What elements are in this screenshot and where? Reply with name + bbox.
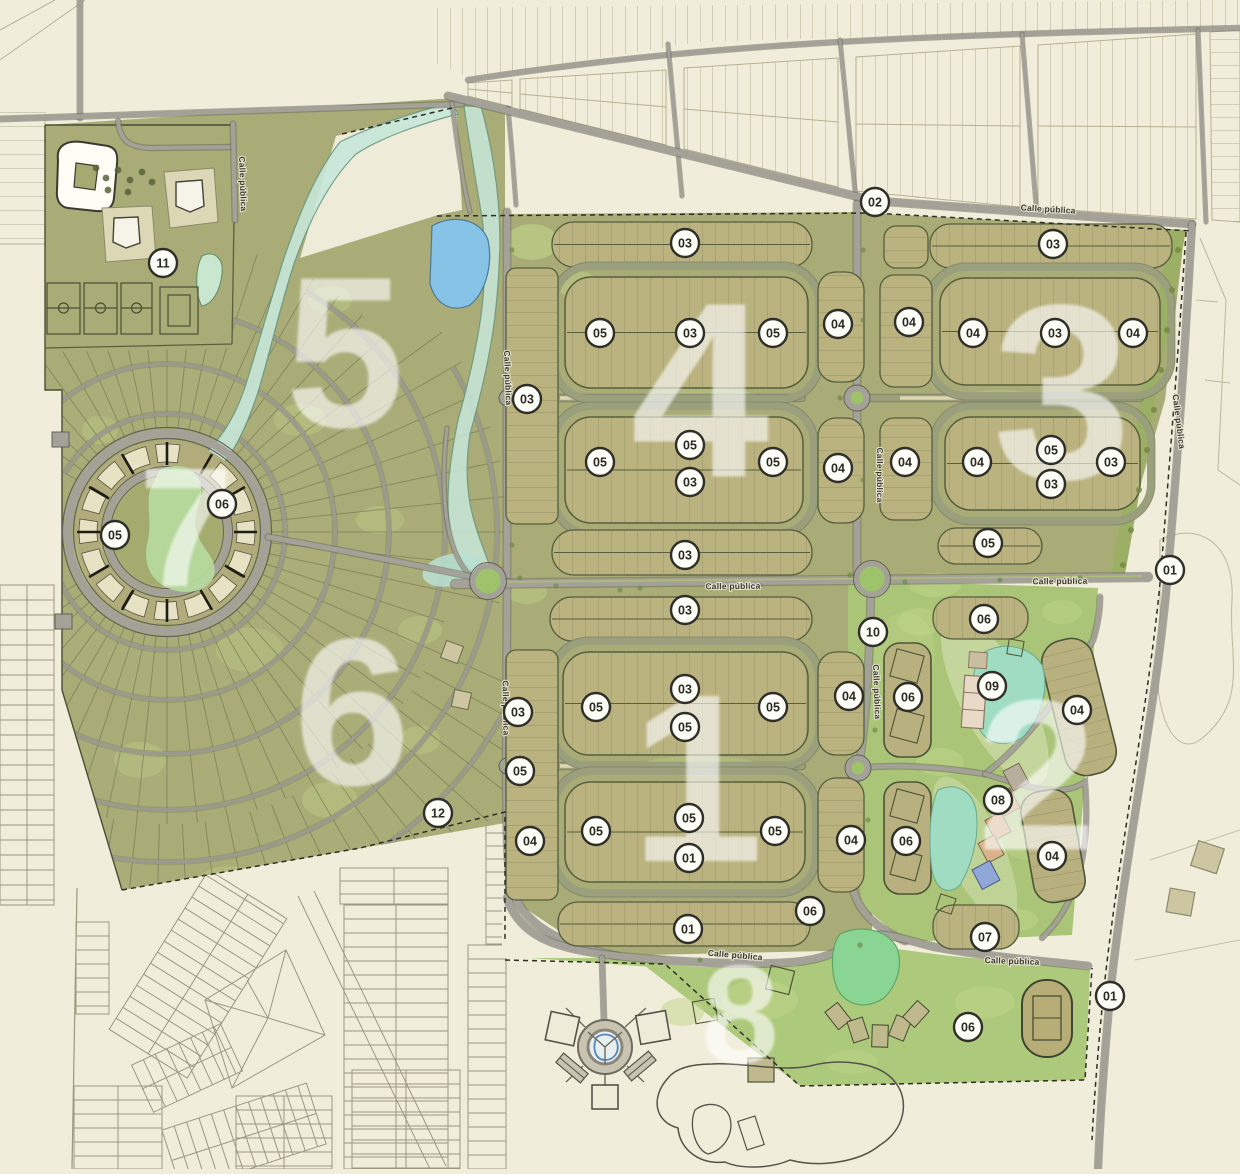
svg-text:05: 05 <box>682 812 696 826</box>
svg-text:06: 06 <box>977 613 991 627</box>
svg-text:05: 05 <box>766 701 780 715</box>
svg-text:01: 01 <box>681 923 695 937</box>
svg-text:11: 11 <box>156 257 169 271</box>
svg-text:06: 06 <box>901 691 915 705</box>
svg-text:05: 05 <box>678 721 692 735</box>
svg-text:03: 03 <box>683 476 697 490</box>
svg-text:05: 05 <box>981 537 995 551</box>
svg-text:05: 05 <box>683 439 697 453</box>
svg-text:6: 6 <box>294 595 411 830</box>
svg-text:5: 5 <box>285 232 405 473</box>
svg-text:Calle pública: Calle pública <box>705 581 760 591</box>
svg-text:03: 03 <box>520 393 534 407</box>
svg-text:7: 7 <box>139 433 234 623</box>
svg-text:Calle pública: Calle pública <box>871 664 883 719</box>
svg-text:05: 05 <box>593 327 607 341</box>
svg-text:04: 04 <box>898 456 912 470</box>
svg-text:06: 06 <box>899 835 913 849</box>
svg-text:04: 04 <box>1045 850 1059 864</box>
svg-text:10: 10 <box>866 626 880 640</box>
svg-text:04: 04 <box>523 835 537 849</box>
svg-text:01: 01 <box>1163 564 1177 578</box>
svg-text:04: 04 <box>966 327 980 341</box>
svg-text:12: 12 <box>431 807 445 821</box>
svg-text:03: 03 <box>1046 238 1060 252</box>
svg-text:09: 09 <box>985 680 999 694</box>
svg-text:Calle pública: Calle pública <box>1032 576 1087 586</box>
svg-text:08: 08 <box>991 794 1005 808</box>
svg-text:04: 04 <box>844 834 858 848</box>
svg-text:05: 05 <box>1044 444 1058 458</box>
svg-text:03: 03 <box>511 706 525 720</box>
svg-text:05: 05 <box>766 327 780 341</box>
svg-text:03: 03 <box>678 549 692 563</box>
svg-text:05: 05 <box>593 456 607 470</box>
svg-text:04: 04 <box>831 318 845 332</box>
svg-text:03: 03 <box>1044 478 1058 492</box>
svg-text:01: 01 <box>1103 990 1117 1004</box>
svg-text:05: 05 <box>766 456 780 470</box>
svg-text:04: 04 <box>1126 327 1140 341</box>
svg-text:05: 05 <box>108 529 122 543</box>
svg-text:03: 03 <box>1048 327 1062 341</box>
svg-text:05: 05 <box>589 825 603 839</box>
svg-text:05: 05 <box>589 701 603 715</box>
svg-text:06: 06 <box>803 905 817 919</box>
svg-text:Calle pública: Calle pública <box>984 955 1039 967</box>
svg-text:03: 03 <box>678 237 692 251</box>
svg-text:04: 04 <box>970 456 984 470</box>
svg-text:07: 07 <box>978 931 992 945</box>
svg-text:03: 03 <box>678 683 692 697</box>
svg-text:Calle pública: Calle pública <box>875 447 885 502</box>
svg-text:01: 01 <box>682 852 696 866</box>
svg-text:03: 03 <box>683 327 697 341</box>
svg-text:Calle pública: Calle pública <box>237 156 249 211</box>
svg-text:04: 04 <box>831 462 845 476</box>
svg-text:06: 06 <box>215 498 229 512</box>
svg-text:03: 03 <box>678 604 692 618</box>
svg-text:04: 04 <box>902 316 916 330</box>
svg-text:05: 05 <box>768 825 782 839</box>
svg-text:05: 05 <box>513 765 527 779</box>
svg-text:04: 04 <box>1070 704 1084 718</box>
svg-text:02: 02 <box>868 196 882 210</box>
svg-text:03: 03 <box>1104 456 1118 470</box>
svg-text:06: 06 <box>961 1021 975 1035</box>
svg-text:04: 04 <box>842 690 856 704</box>
